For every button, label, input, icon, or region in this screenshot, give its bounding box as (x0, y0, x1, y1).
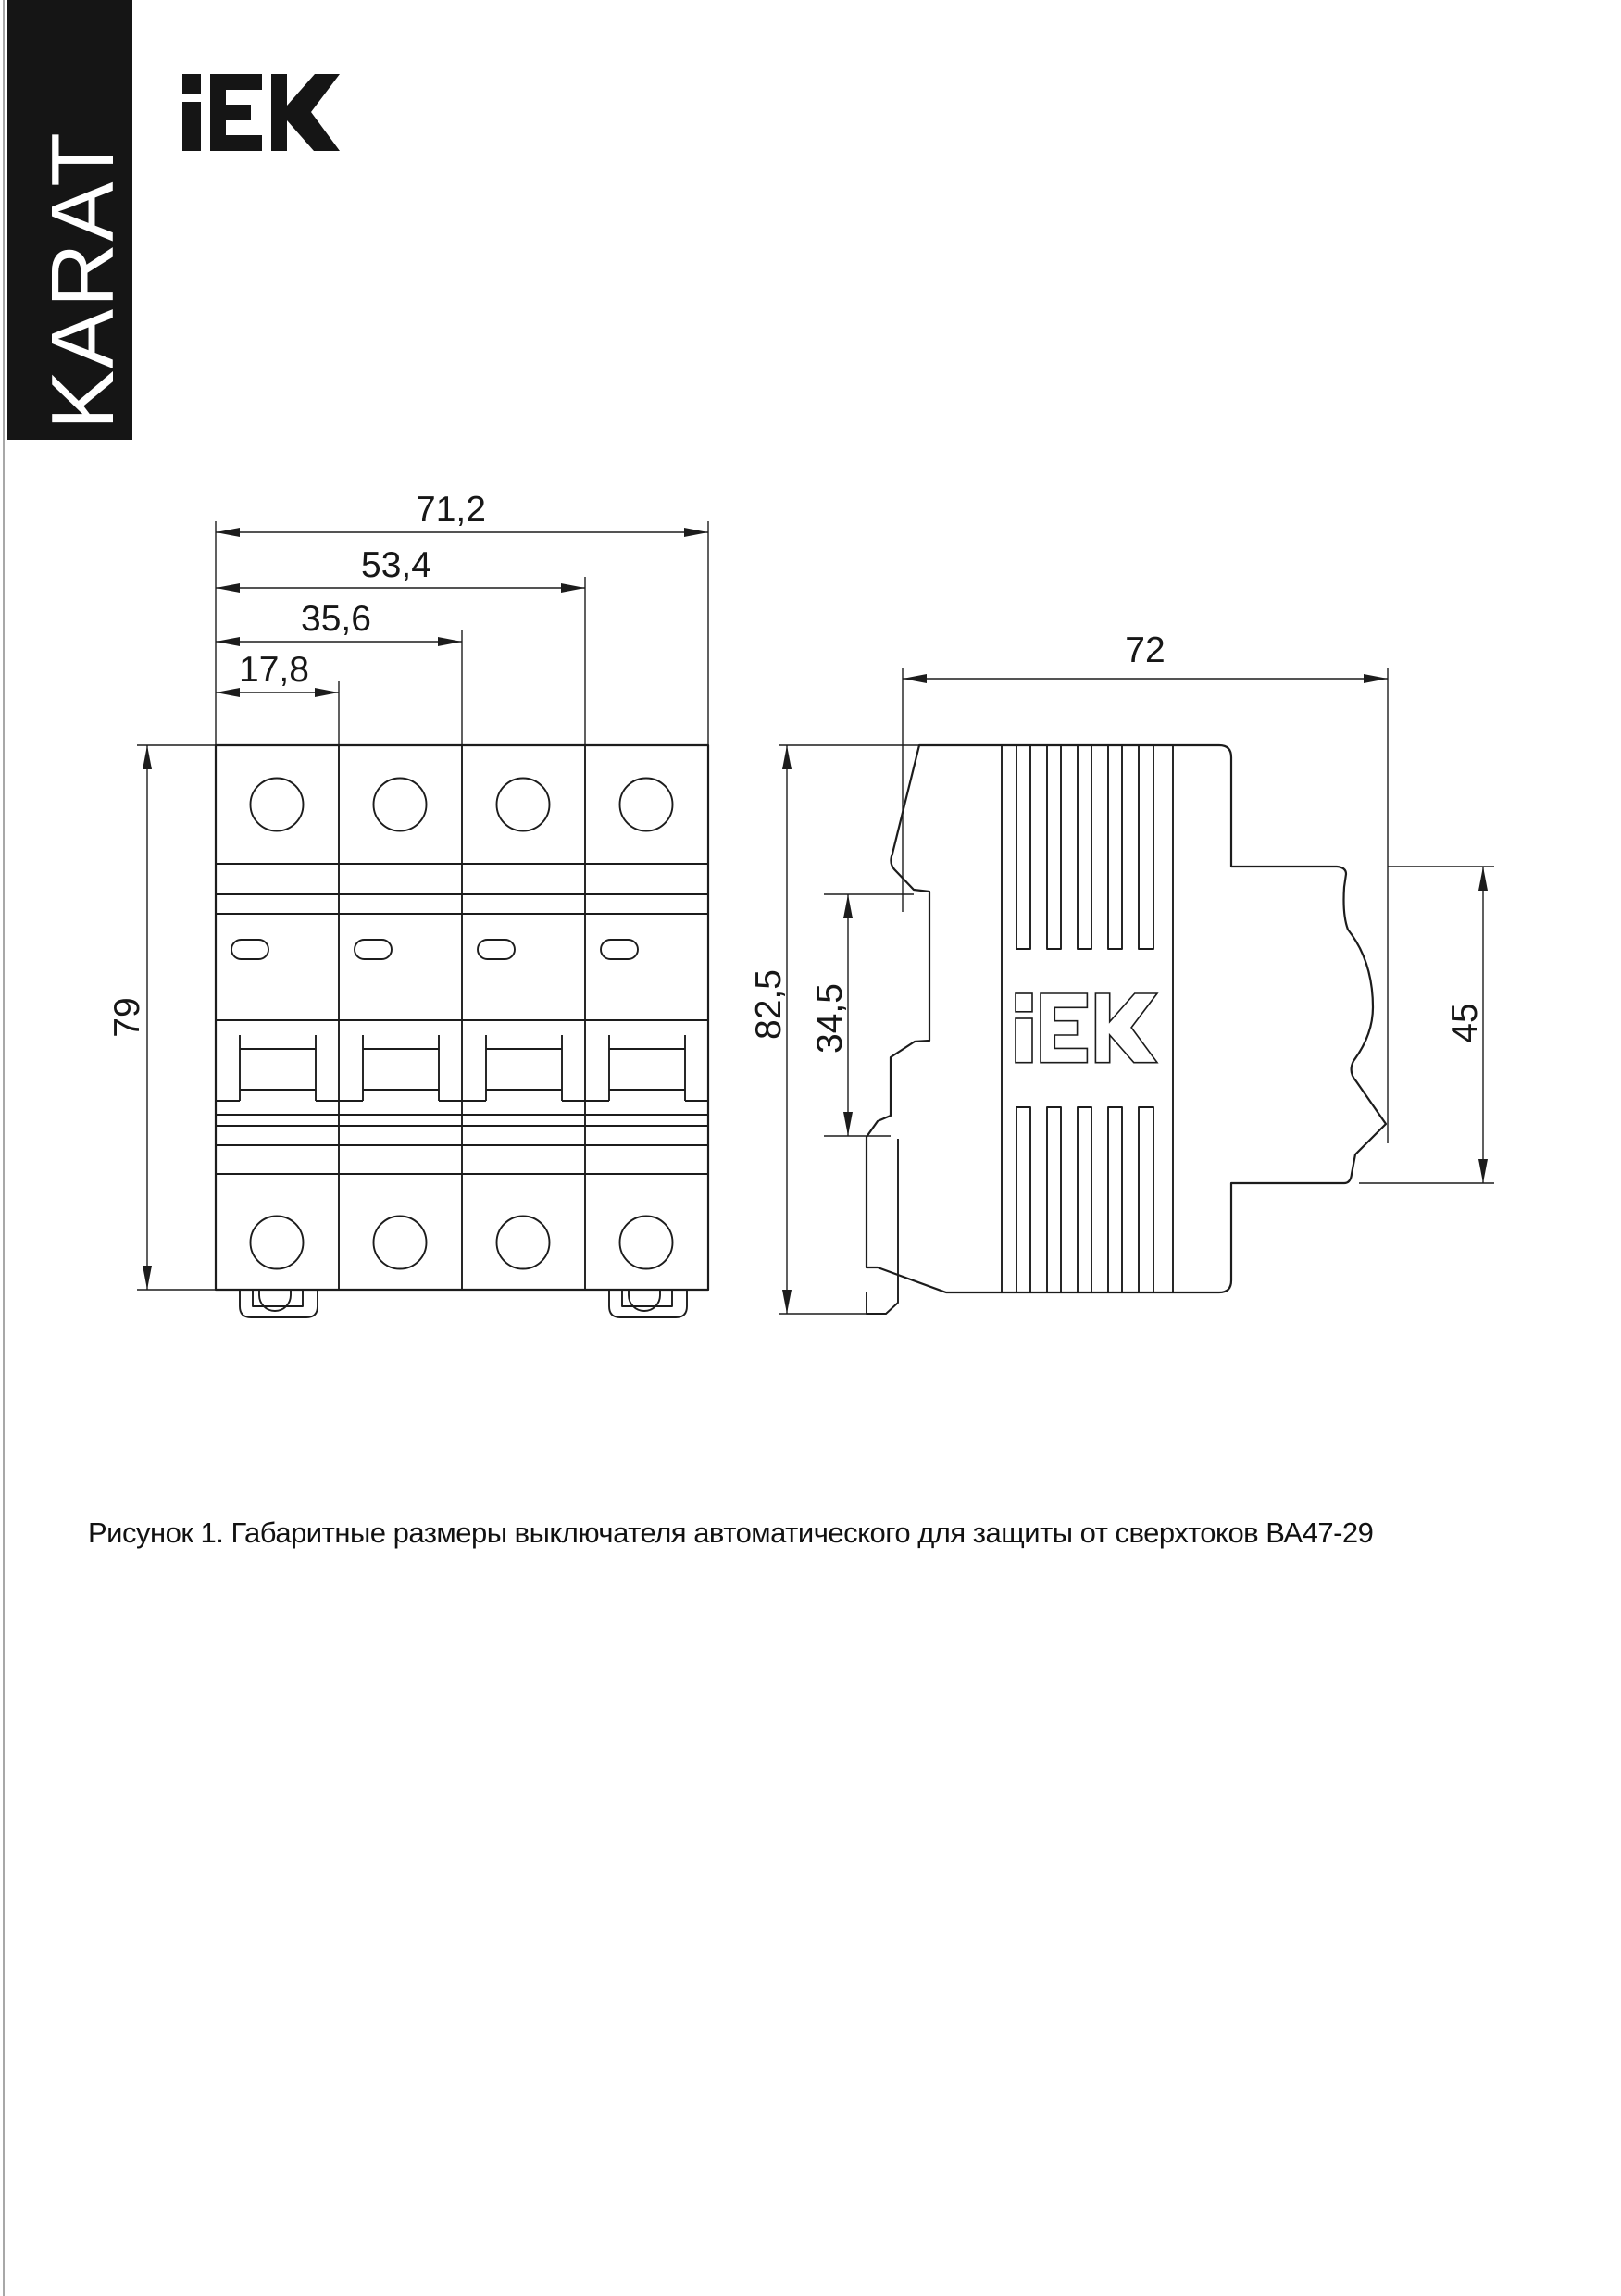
vent-slots-bottom (1016, 1107, 1153, 1292)
dim-width-two-modules: 35,6 (301, 599, 371, 639)
front-view-dimensions: 71,2 53,4 35,6 17,8 79 (107, 490, 708, 1290)
dim-width-three-modules: 53,4 (361, 545, 431, 585)
dim-height-front: 79 (107, 997, 147, 1037)
side-view (867, 745, 1386, 1314)
marking-windows (231, 940, 638, 959)
dim-din-recess: 34,5 (810, 983, 850, 1054)
iek-logo-engraved-icon (1016, 993, 1157, 1063)
front-view (216, 745, 708, 1317)
datasheet-page: KARAT (0, 0, 1621, 2296)
iek-logo-icon (182, 74, 340, 151)
dim-front-face: 45 (1445, 1003, 1485, 1042)
din-clips-front (240, 1291, 687, 1317)
dimensional-drawing: 71,2 53,4 35,6 17,8 79 72 82,5 34,5 (0, 0, 1621, 2296)
dim-width-one-module: 17,8 (239, 650, 309, 690)
dim-width-total: 71,2 (416, 490, 486, 530)
dim-height-total: 82,5 (749, 969, 789, 1040)
dim-depth-total: 72 (1125, 630, 1165, 670)
vent-slots-top (1016, 745, 1153, 949)
figure-caption: Рисунок 1. Габаритные размеры выключател… (88, 1516, 1477, 1550)
